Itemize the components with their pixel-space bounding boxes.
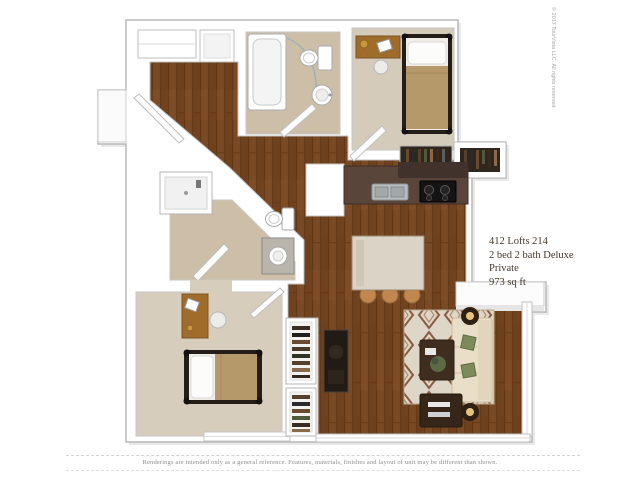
unit-privacy: Private	[489, 262, 574, 276]
desk-2	[182, 294, 208, 338]
blanket-1	[406, 66, 448, 129]
divider-line	[66, 470, 580, 471]
copyright-text: © 2017 TourVista LLC. All rights reserve…	[550, 7, 556, 107]
sofa	[452, 318, 492, 402]
sink-1	[312, 85, 332, 105]
bathtub	[248, 34, 286, 110]
floor-plan-page: 412 Lofts 214 2 bed 2 bath Deluxe Privat…	[0, 0, 640, 480]
pillow-1	[408, 42, 446, 64]
side-lamp	[461, 307, 479, 325]
divider-line	[66, 455, 580, 456]
table-plant	[430, 356, 446, 372]
kitchen-sink	[372, 184, 408, 200]
upper-cabinets	[398, 162, 468, 178]
desk-1	[356, 36, 400, 58]
bedroom-2	[136, 280, 290, 441]
unit-info-label: 412 Lofts 214 2 bed 2 bath Deluxe Privat…	[489, 235, 574, 289]
bed-2	[184, 350, 263, 405]
desk-chair-2	[210, 312, 226, 328]
desk-lamp	[360, 40, 368, 48]
desk-chair-1	[374, 60, 388, 74]
unit-sqft: 973 sq ft	[489, 276, 574, 290]
side-lamp	[461, 403, 479, 421]
bed-1	[402, 34, 453, 135]
shower-stall	[160, 172, 212, 214]
unit-name: 412 Lofts 214	[489, 235, 574, 249]
sink-2	[262, 238, 294, 274]
coffee-table	[420, 340, 454, 380]
mechanical-closet	[324, 330, 348, 392]
kitchen-pantry-wall	[306, 164, 344, 216]
tv-stand	[420, 394, 462, 427]
stove	[420, 181, 456, 202]
entry-stoop	[98, 90, 126, 142]
unit-type: 2 bed 2 bath Deluxe	[489, 249, 574, 263]
pillow-2	[191, 356, 213, 398]
throw-pillow	[461, 363, 476, 378]
bathroom-1	[246, 32, 340, 137]
throw-pillow	[461, 335, 476, 350]
hall-closets	[286, 318, 316, 436]
disclaimer-text: Renderings are intended only as a genera…	[0, 459, 640, 466]
